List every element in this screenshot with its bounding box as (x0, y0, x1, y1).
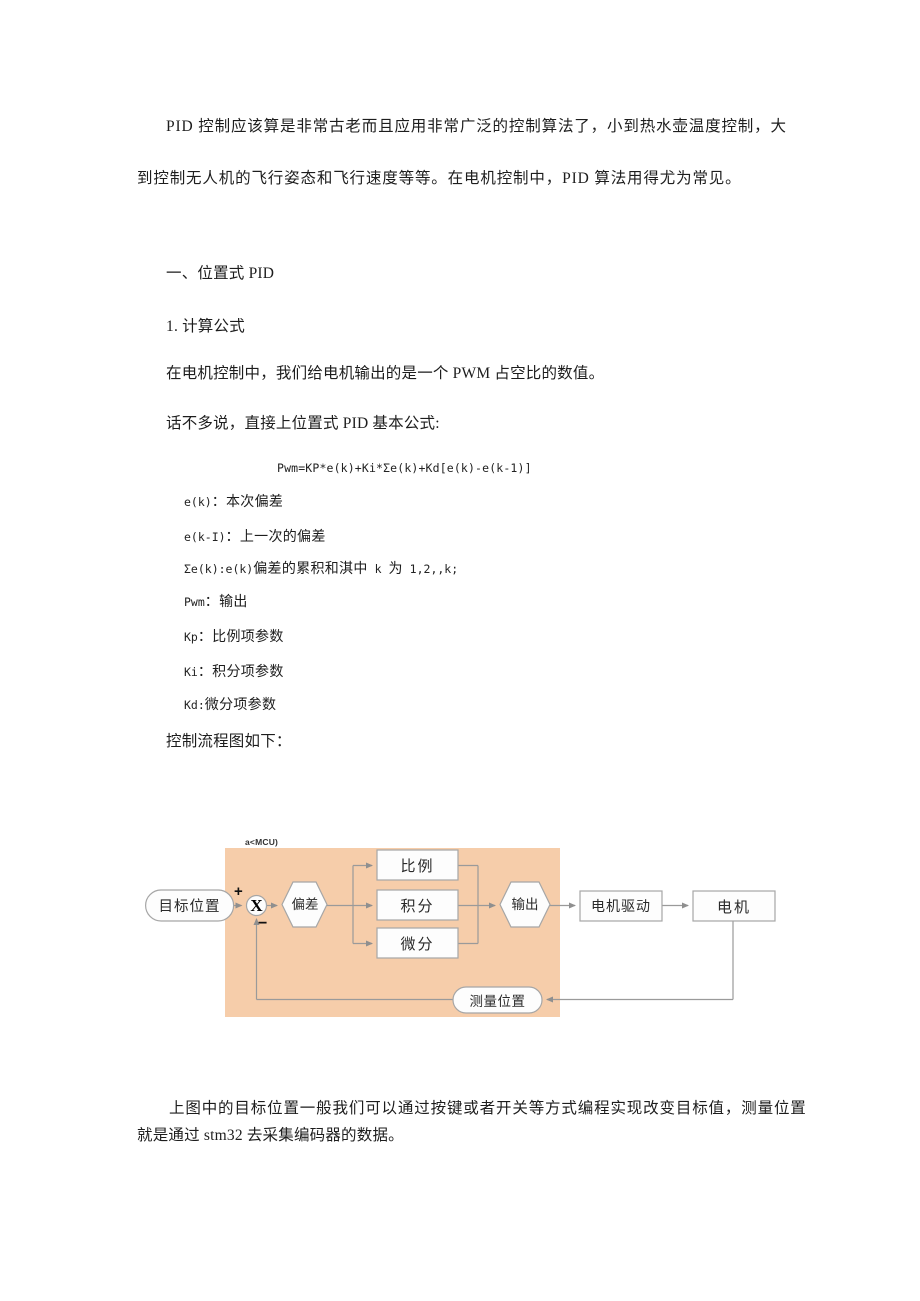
definition-symbol: Σe(k):e(k) (184, 562, 253, 576)
section-heading: 一、位置式 PID (166, 264, 274, 283)
definition-text: 微分项参数 (205, 698, 277, 713)
measured-position-label: 测量位置 (453, 987, 542, 1013)
document-page: PID 控制应该算是非常古老而且应用非常广泛的控制算法了，小到热水壶温度控制，大… (0, 0, 920, 1301)
definition-symbol: e(k-I) (184, 530, 226, 544)
sub-heading: 1. 计算公式 (166, 317, 245, 336)
definition-symbol: Kp (184, 630, 198, 644)
output-label: 输出 (507, 882, 543, 927)
definition-line: Kp：比例项参数 (184, 629, 284, 646)
sum-junction-label: X (246, 895, 267, 916)
pwm-sentence: 在电机控制中，我们给电机输出的是一个 PWM 占空比的数值。 (166, 364, 604, 383)
minus-sign: − (258, 915, 267, 933)
derivative-label: 微分 (377, 928, 458, 958)
definition-line: Pwm：输出 (184, 594, 248, 611)
formula-intro-sentence: 话不多说，直接上位置式 PID 基本公式: (166, 414, 440, 433)
definition-symbol: k (368, 562, 389, 576)
pid-formula: Pwm=KP*e(k)+Ki*Σe(k)+Kd[e(k)-e(k-1)] (277, 461, 532, 475)
intro-paragraph-line1: PID 控制应该算是非常古老而且应用非常广泛的控制算法了，小到热水壶温度控制，大 (166, 117, 787, 136)
footer-paragraph-line2: 就是通过 stm32 去采集编码器的数据。 (137, 1126, 404, 1145)
proportional-label: 比例 (377, 850, 458, 880)
definition-text: ：本次偏差 (212, 495, 284, 510)
definition-text: ：上一次的偏差 (226, 530, 326, 545)
motor-driver-label: 电机驱动 (580, 891, 662, 921)
definition-text: 为 (388, 562, 402, 577)
plus-sign: + (234, 883, 243, 900)
error-label: 偏差 (284, 882, 326, 927)
definition-symbol: e(k) (184, 495, 212, 509)
definition-text: ：积分项参数 (198, 665, 284, 680)
definition-text: 偏差的累积和淇中 (253, 562, 367, 577)
definition-line: Σe(k):e(k)偏差的累积和淇中 k 为 1,2,,k; (184, 561, 458, 578)
pid-flow-diagram: a<MCU) (145, 841, 777, 1018)
definition-line: Ki：积分项参数 (184, 664, 284, 681)
definition-text: ：输出 (205, 595, 248, 610)
integral-label: 积分 (377, 890, 458, 920)
definition-line: e(k-I)：上一次的偏差 (184, 529, 326, 546)
definition-text: ：比例项参数 (198, 630, 284, 645)
motor-label: 电机 (693, 891, 775, 921)
definition-line: Kd:微分项参数 (184, 697, 276, 714)
intro-paragraph-line2: 到控制无人机的飞行姿态和飞行速度等等。在电机控制中，PID 算法用得尤为常见。 (137, 169, 742, 188)
footer-paragraph-line1: 上图中的目标位置一般我们可以通过按键或者开关等方式编程实现改变目标值，测量位置 (169, 1099, 807, 1118)
definition-symbol: 1,2,,k; (403, 562, 458, 576)
target-position-label: 目标位置 (145, 890, 234, 921)
flow-diagram-label: 控制流程图如下： (166, 732, 292, 751)
definition-symbol: Ki (184, 665, 198, 679)
definition-symbol: Pwm (184, 595, 205, 609)
definition-symbol: Kd: (184, 698, 205, 712)
definition-line: e(k)：本次偏差 (184, 494, 283, 511)
